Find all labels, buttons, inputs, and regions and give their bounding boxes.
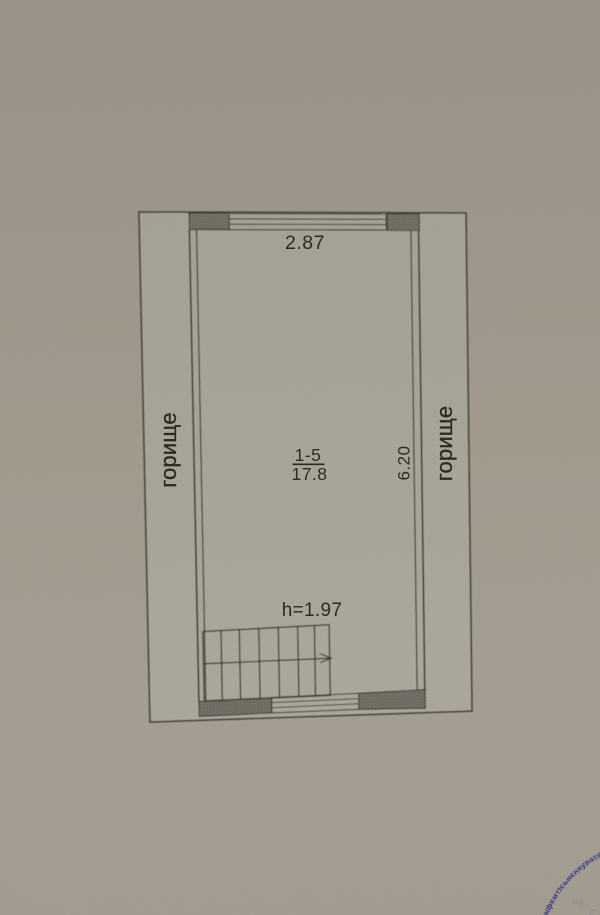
svg-text:1-5: 1-5 <box>295 445 322 465</box>
svg-text:17.8: 17.8 <box>291 464 327 484</box>
svg-text:h=1.97: h=1.97 <box>282 600 342 621</box>
svg-text:6.20: 6.20 <box>395 445 414 480</box>
svg-text:горище: горище <box>156 412 181 488</box>
svg-text:горище: горище <box>432 406 457 482</box>
svg-text:2.87: 2.87 <box>285 232 325 254</box>
